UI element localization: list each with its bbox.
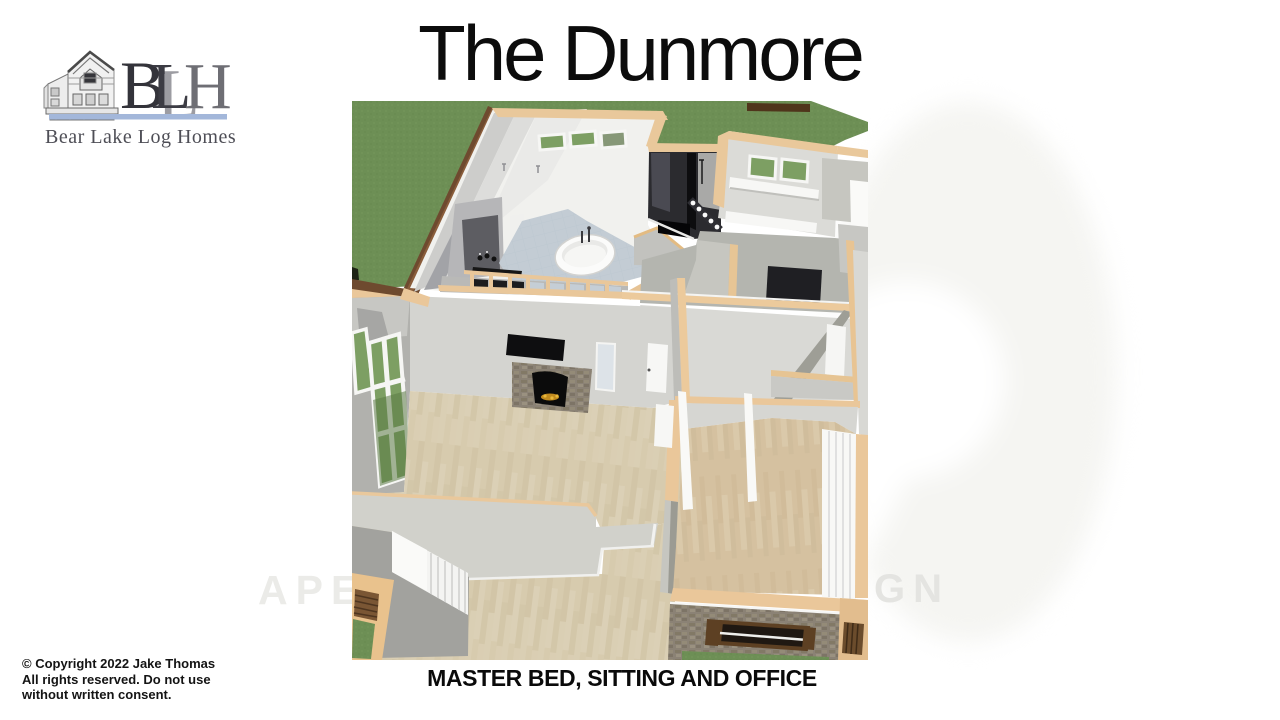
svg-text:Bear Lake Log Homes: Bear Lake Log Homes	[45, 126, 236, 148]
svg-text:H: H	[184, 50, 232, 123]
svg-text:GN: GN	[874, 567, 950, 611]
